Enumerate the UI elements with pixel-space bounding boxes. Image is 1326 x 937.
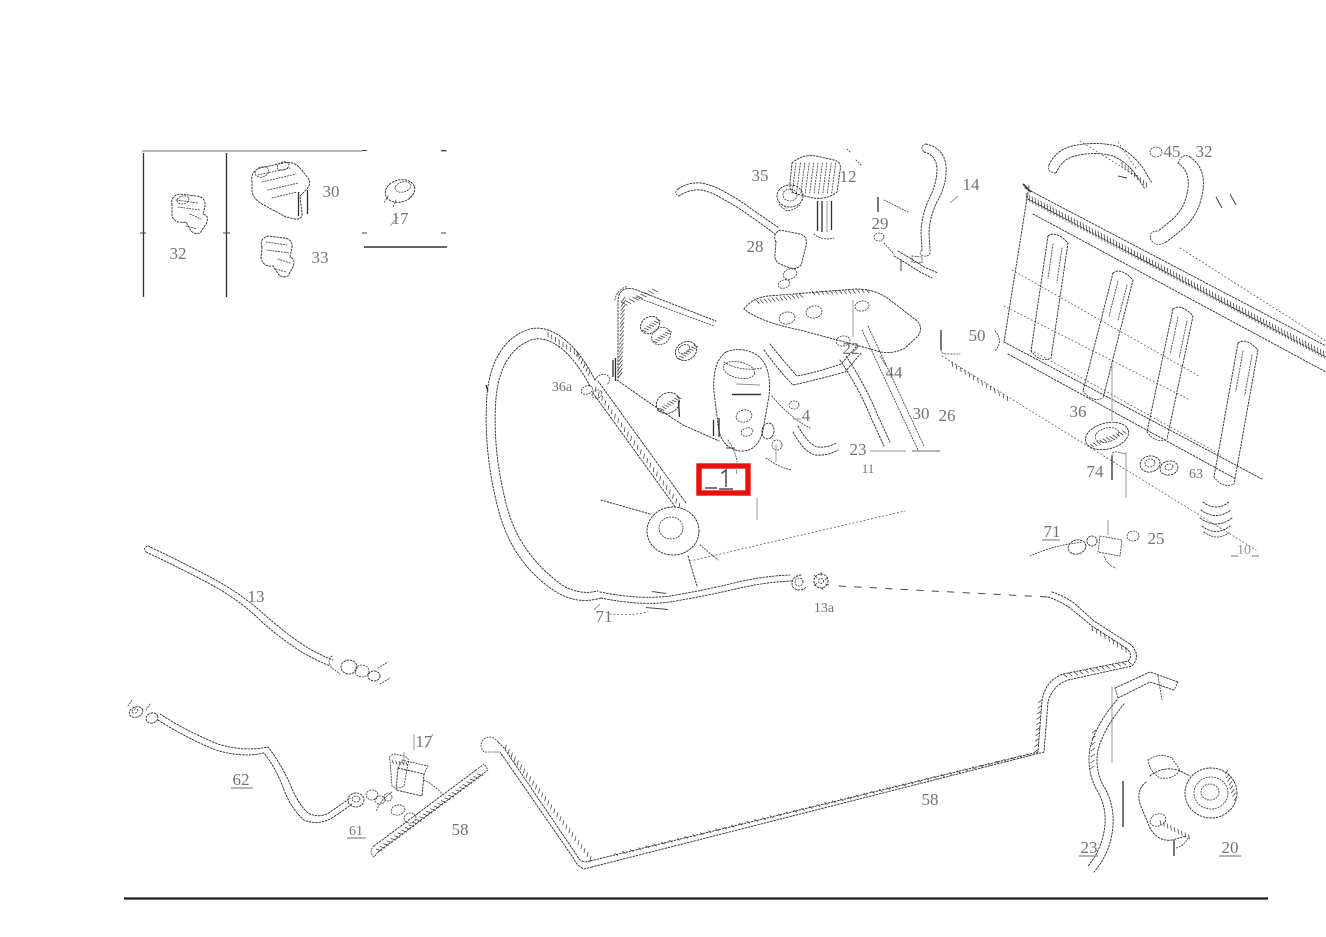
- svg-text:23: 23: [1081, 838, 1098, 857]
- svg-text:58: 58: [452, 820, 469, 839]
- svg-text:74: 74: [1087, 462, 1105, 481]
- svg-text:71: 71: [1044, 522, 1061, 541]
- svg-text:29: 29: [872, 214, 889, 233]
- svg-text:20: 20: [1222, 838, 1239, 857]
- svg-text:11: 11: [862, 461, 875, 476]
- svg-text:32: 32: [1196, 142, 1213, 161]
- svg-text:13a: 13a: [814, 601, 835, 616]
- svg-text:12: 12: [840, 167, 857, 186]
- svg-text:23: 23: [850, 440, 867, 459]
- svg-text:30: 30: [913, 404, 930, 423]
- svg-text:17: 17: [392, 209, 410, 228]
- svg-text:35: 35: [752, 166, 769, 185]
- svg-text:14: 14: [963, 175, 981, 194]
- svg-text:62: 62: [233, 770, 250, 789]
- svg-text:30: 30: [323, 182, 340, 201]
- svg-text:44: 44: [886, 363, 904, 382]
- svg-text:17: 17: [416, 732, 434, 751]
- svg-text:10: 10: [1237, 543, 1251, 558]
- svg-text:58: 58: [922, 790, 939, 809]
- svg-text:36: 36: [1070, 402, 1087, 421]
- svg-text:45: 45: [1164, 142, 1181, 161]
- svg-text:33: 33: [312, 248, 329, 267]
- svg-text:71: 71: [596, 607, 613, 626]
- svg-text:63: 63: [1189, 467, 1203, 482]
- svg-text:32: 32: [170, 244, 187, 263]
- svg-text:50: 50: [969, 326, 986, 345]
- svg-text:36a: 36a: [552, 380, 573, 395]
- svg-text:61: 61: [349, 824, 363, 839]
- svg-text:26: 26: [939, 406, 956, 425]
- svg-text:13: 13: [248, 587, 265, 606]
- svg-text:4: 4: [802, 406, 811, 425]
- svg-text:28: 28: [747, 237, 764, 256]
- svg-text:22: 22: [843, 339, 860, 358]
- svg-text:25: 25: [1148, 529, 1165, 548]
